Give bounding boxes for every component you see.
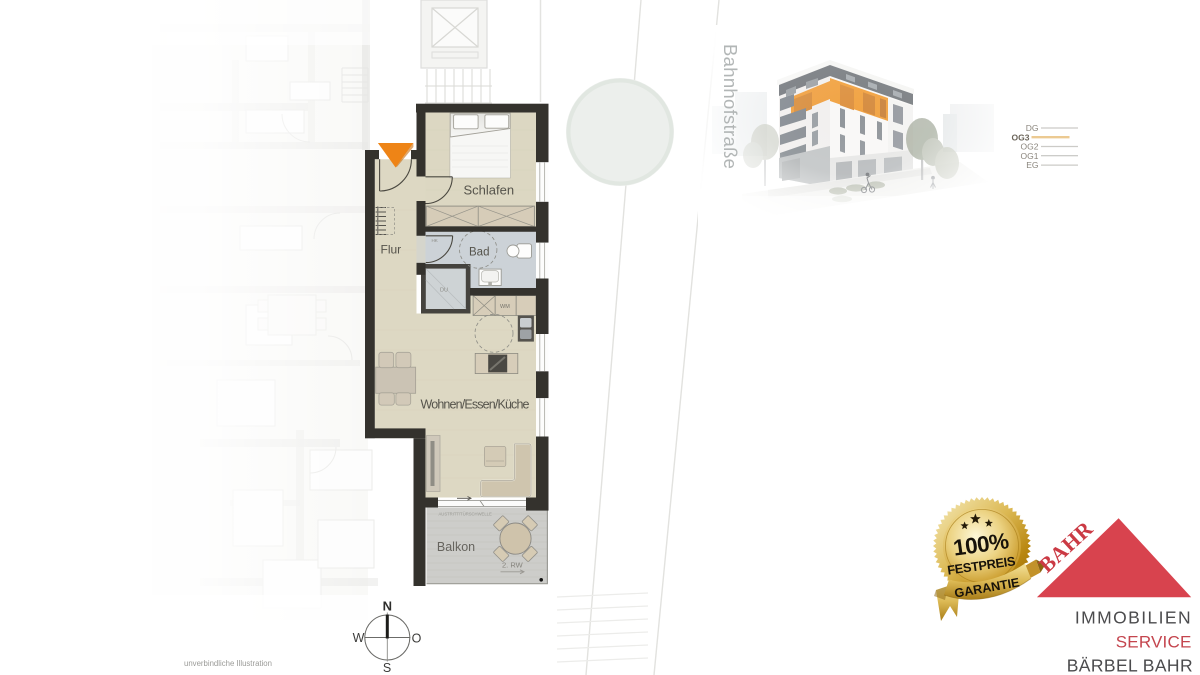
- svg-text:EG: EG: [1026, 160, 1038, 170]
- svg-text:2. RW: 2. RW: [502, 561, 524, 570]
- svg-text:S: S: [383, 661, 391, 675]
- svg-text:Wohnen/Essen/Küche: Wohnen/Essen/Küche: [421, 398, 530, 412]
- svg-text:W: W: [353, 631, 365, 645]
- svg-text:SERVICE: SERVICE: [1116, 633, 1192, 652]
- svg-text:Balkon: Balkon: [437, 540, 475, 554]
- svg-text:unverbindliche Illustration: unverbindliche Illustration: [184, 659, 272, 668]
- svg-text:Schlafen: Schlafen: [464, 183, 515, 198]
- svg-text:O: O: [412, 632, 422, 646]
- svg-text:HK: HK: [432, 238, 438, 243]
- svg-text:AUSTRITT/TÜRSCHWELLE: AUSTRITT/TÜRSCHWELLE: [439, 512, 492, 517]
- svg-text:N: N: [383, 599, 392, 614]
- svg-text:IMMOBILIEN: IMMOBILIEN: [1075, 608, 1192, 628]
- svg-text:Bad: Bad: [469, 246, 489, 258]
- svg-text:Bahnhofstraße: Bahnhofstraße: [720, 44, 741, 169]
- svg-text:WM: WM: [500, 304, 510, 310]
- svg-text:DU: DU: [440, 288, 448, 294]
- svg-text:BÄRBEL BAHR: BÄRBEL BAHR: [1067, 656, 1193, 675]
- svg-text:Flur: Flur: [381, 243, 402, 257]
